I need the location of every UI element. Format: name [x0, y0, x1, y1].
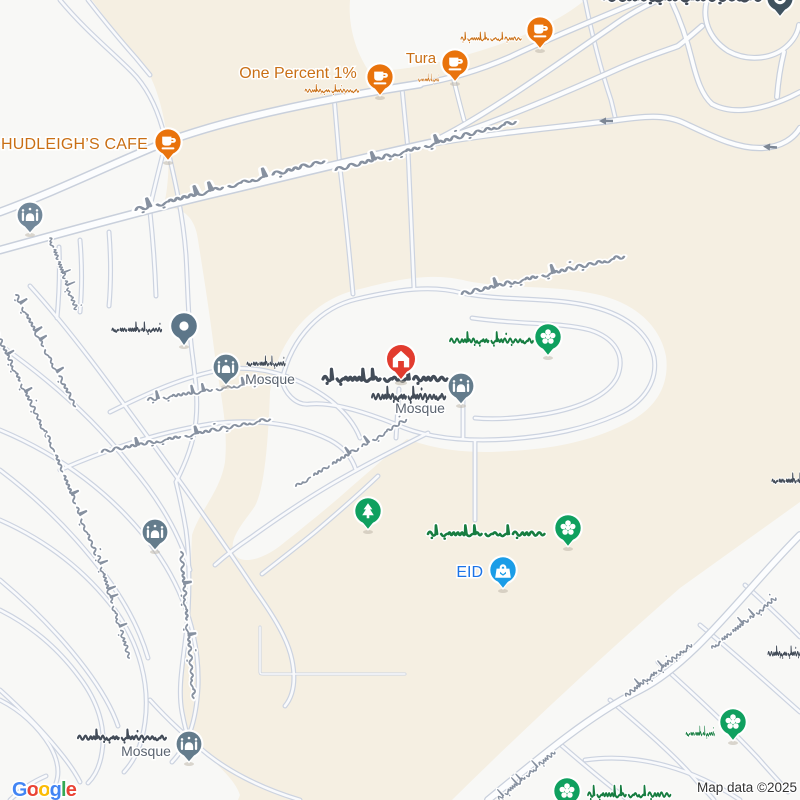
svg-text:Mosque: Mosque	[245, 371, 295, 387]
svg-text:Google: Google	[12, 779, 77, 800]
svg-text:Map data ©2025: Map data ©2025	[697, 780, 797, 795]
svg-text:One Percent 1%: One Percent 1%	[239, 65, 356, 82]
svg-text:Mosque: Mosque	[121, 743, 171, 759]
svg-text:CHUDLEIGH’S CAFE: CHUDLEIGH’S CAFE	[0, 136, 148, 153]
svg-text:Tura: Tura	[406, 50, 437, 67]
svg-text:EID: EID	[456, 564, 483, 581]
svg-text:Mosque: Mosque	[395, 400, 445, 416]
